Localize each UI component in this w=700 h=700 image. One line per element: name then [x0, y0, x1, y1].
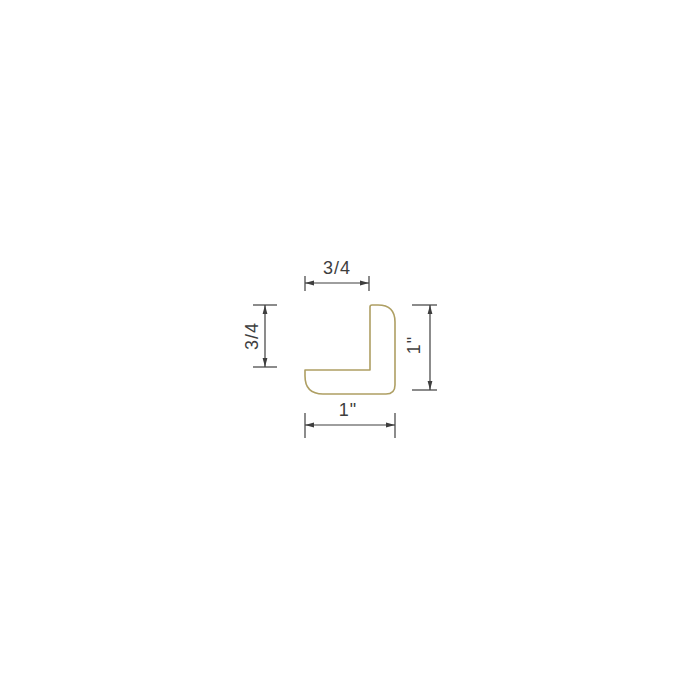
bottom-dimension-arrow-right	[386, 423, 395, 428]
top-dimension: 3/4	[305, 258, 369, 291]
right-dimension-arrow-bottom	[428, 381, 433, 390]
left-dimension-arrow-bottom	[263, 358, 268, 367]
drawing-canvas: 3/4 3/4 1" 1"	[0, 0, 700, 700]
profile-diagram: 3/4 3/4 1" 1"	[0, 0, 700, 700]
top-dimension-arrow-right	[360, 281, 369, 286]
right-dimension-arrow-top	[428, 305, 433, 314]
top-dimension-arrow-left	[305, 281, 314, 286]
l-profile-outline	[305, 305, 395, 394]
top-dimension-label: 3/4	[323, 258, 351, 278]
left-dimension-label: 3/4	[242, 322, 262, 350]
bottom-dimension-arrow-left	[305, 423, 314, 428]
bottom-dimension-label: 1"	[339, 400, 357, 420]
left-dimension: 3/4	[242, 305, 277, 367]
right-dimension-label: 1"	[404, 336, 424, 354]
bottom-dimension: 1"	[305, 400, 395, 438]
right-dimension: 1"	[404, 305, 437, 390]
left-dimension-arrow-top	[263, 305, 268, 314]
